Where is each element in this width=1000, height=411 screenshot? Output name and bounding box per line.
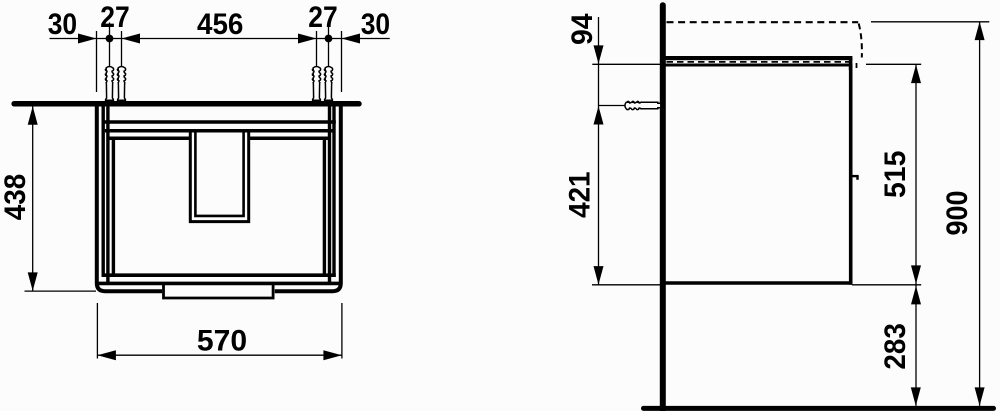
svg-text:94: 94 bbox=[566, 13, 599, 45]
svg-text:421: 421 bbox=[563, 172, 596, 218]
svg-text:27: 27 bbox=[308, 1, 337, 34]
svg-text:515: 515 bbox=[879, 151, 912, 199]
svg-text:30: 30 bbox=[48, 8, 77, 41]
svg-text:283: 283 bbox=[879, 323, 912, 369]
svg-text:570: 570 bbox=[197, 324, 247, 357]
svg-text:27: 27 bbox=[100, 1, 129, 34]
svg-text:438: 438 bbox=[0, 174, 32, 220]
svg-text:900: 900 bbox=[941, 191, 974, 236]
svg-text:30: 30 bbox=[361, 8, 390, 41]
svg-text:456: 456 bbox=[197, 8, 243, 41]
